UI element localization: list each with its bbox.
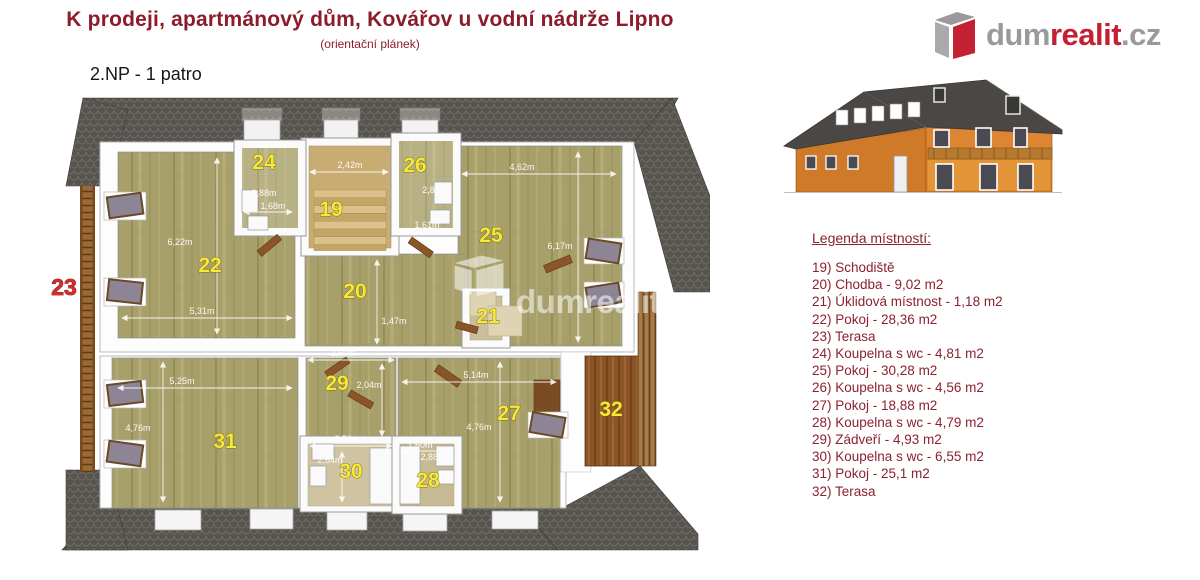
dim-20-height: 1,47m xyxy=(381,316,406,326)
dim-30-width: 2,50m xyxy=(334,434,359,444)
logo-cz: .cz xyxy=(1121,17,1161,52)
right-railing xyxy=(638,292,656,466)
box-logo-icon xyxy=(933,8,977,60)
dim-26-b: 1,61m xyxy=(414,220,439,230)
room-label-21: 21 xyxy=(476,305,500,328)
legend-item: 25) Pokoj - 30,28 m2 xyxy=(812,362,1003,379)
legend-item: 27) Pokoj - 18,88 m2 xyxy=(812,397,1003,414)
logo-dum: dum xyxy=(986,17,1050,52)
legend-item: 19) Schodiště xyxy=(812,259,1003,276)
logo-text: dumrealit.cz xyxy=(986,10,1161,60)
legend-item: 31) Pokoj - 25,1 m2 xyxy=(812,465,1003,482)
house-3d-render xyxy=(778,68,1068,208)
room-label-28: 28 xyxy=(416,469,440,492)
legend-item: 28) Koupelna s wc - 4,79 m2 xyxy=(812,414,1003,431)
dim-24-b: 1,68m xyxy=(260,201,285,211)
stairwell-19 xyxy=(301,138,399,256)
room-label-24: 24 xyxy=(252,151,276,174)
legend-item: 20) Chodba - 9,02 m2 xyxy=(812,276,1003,293)
dim-28-width: 1,60m xyxy=(407,440,432,450)
legend-title: Legenda místností: xyxy=(812,230,1003,246)
legend-item: 22) Pokoj - 28,36 m2 xyxy=(812,311,1003,328)
room-label-23: 23 xyxy=(51,274,77,300)
dim-27-width: 5,14m xyxy=(463,370,488,380)
dim-25-height: 6,17m xyxy=(547,241,572,251)
legend-item: 21) Úklidová místnost - 1,18 m2 xyxy=(812,293,1003,310)
room-label-20: 20 xyxy=(343,280,366,303)
dim-19-width: 2,42m xyxy=(337,160,362,170)
legend-item: 26) Koupelna s wc - 4,56 m2 xyxy=(812,379,1003,396)
legend-item: 24) Koupelna s wc - 4,81 m2 xyxy=(812,345,1003,362)
room-label-32: 32 xyxy=(599,398,622,421)
terrace-23-strip xyxy=(80,186,95,472)
room-label-22: 22 xyxy=(198,254,221,277)
floor-plan: 2,42m 2,88m 1,68m 2,83 1,61m 4,62m 6,17m… xyxy=(42,92,710,564)
flyer-canvas: K prodeji, apartmánový dům, Kovářov u vo… xyxy=(0,0,1200,580)
logo-realit: realit xyxy=(1050,17,1121,52)
room-label-26: 26 xyxy=(403,154,426,177)
page-subtitle: (orientační plánek) xyxy=(0,37,740,51)
dim-22-width: 5,31m xyxy=(189,306,214,316)
legend-item: 32) Terasa xyxy=(812,483,1003,500)
room-29-floor xyxy=(306,358,396,440)
room-label-25: 25 xyxy=(479,224,503,247)
dim-25-width: 4,62m xyxy=(509,162,534,172)
dim-22-height: 6,22m xyxy=(167,237,192,247)
room-label-31: 31 xyxy=(213,430,237,453)
legend-item: 29) Zádveří - 4,93 m2 xyxy=(812,431,1003,448)
legend-list: 19) Schodiště 20) Chodba - 9,02 m2 21) Ú… xyxy=(812,259,1003,500)
room-20-floor xyxy=(305,254,465,346)
dim-24-a: 2,88m xyxy=(251,188,276,198)
legend-item: 30) Koupelna s wc - 6,55 m2 xyxy=(812,448,1003,465)
dim-31-height: 4,76m xyxy=(125,423,150,433)
dumrealit-logo: dumrealit.cz xyxy=(933,8,1161,60)
room-label-27: 27 xyxy=(497,402,520,425)
room-label-29: 29 xyxy=(325,372,348,395)
dim-29-width: 2,50m xyxy=(330,348,355,358)
dim-29-height: 2,04m xyxy=(356,380,381,390)
dim-27-height: 4,76m xyxy=(466,422,491,432)
room-legend: Legenda místností: 19) Schodiště 20) Cho… xyxy=(812,230,1003,500)
floor-label: 2.NP - 1 patro xyxy=(90,64,202,85)
dim-28-height: 2,88m xyxy=(420,452,445,462)
page-title: K prodeji, apartmánový dům, Kovářov u vo… xyxy=(0,8,740,32)
dim-31-width: 5,25m xyxy=(169,376,194,386)
legend-item: 23) Terasa xyxy=(812,328,1003,345)
room-label-30: 30 xyxy=(339,460,362,483)
dim-26-a: 2,83 xyxy=(422,185,440,195)
room-label-19: 19 xyxy=(319,198,342,221)
